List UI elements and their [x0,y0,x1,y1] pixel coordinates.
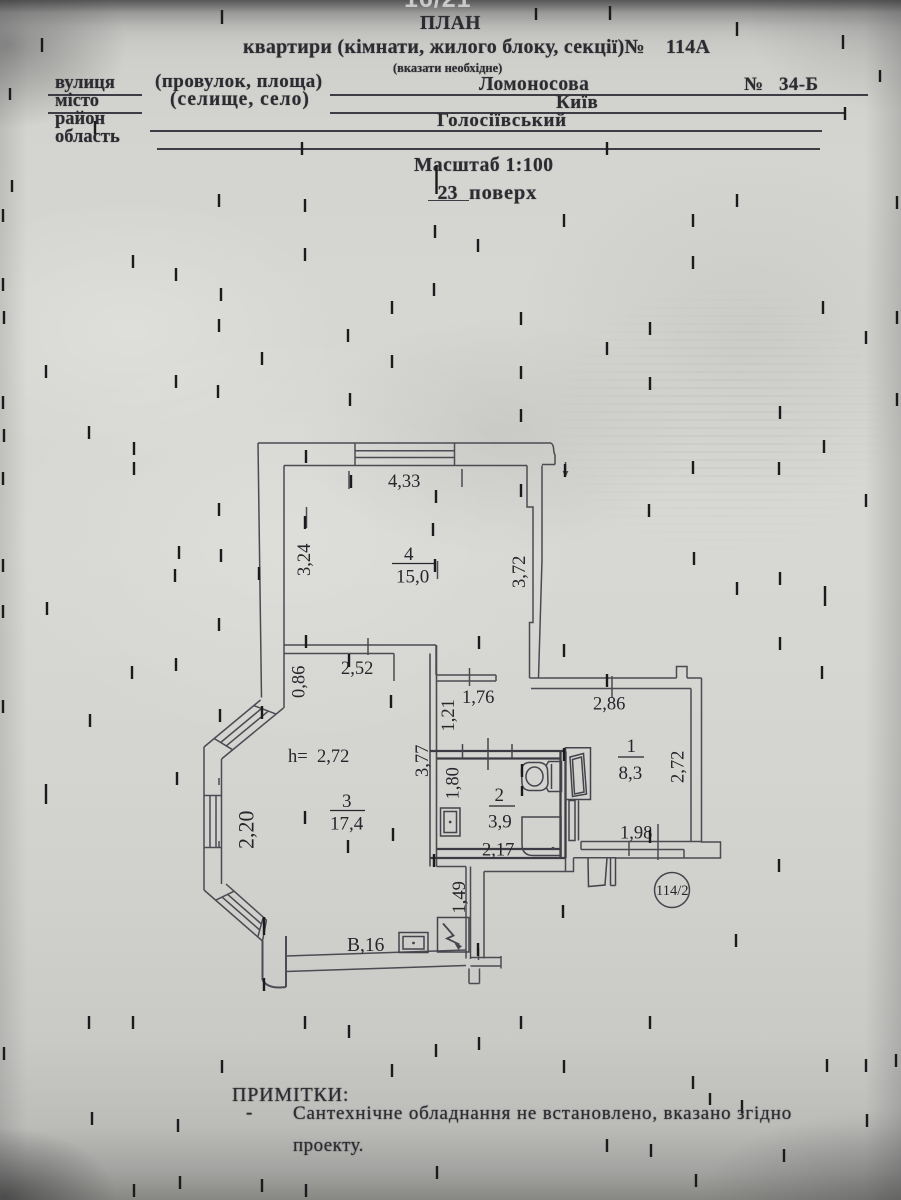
svg-text:h=: h= [288,747,308,767]
svg-text:114/2: 114/2 [656,883,689,899]
svg-text:1,21: 1,21 [439,699,459,731]
svg-text:В,16: В,16 [347,935,385,956]
svg-text:3,77: 3,77 [413,745,433,777]
svg-text:0,86: 0,86 [290,666,310,698]
svg-text:2,86: 2,86 [593,695,625,715]
svg-text:1: 1 [627,736,637,757]
svg-text:17,4: 17,4 [330,814,364,835]
svg-text:3: 3 [342,791,352,812]
svg-text:4,33: 4,33 [388,472,420,492]
svg-text:1,98: 1,98 [620,824,652,844]
svg-text:2: 2 [495,785,505,806]
svg-text:2,72: 2,72 [317,747,349,767]
svg-text:1,76: 1,76 [462,688,494,708]
svg-text:8,3: 8,3 [619,763,643,784]
svg-text:1,80: 1,80 [444,767,464,799]
svg-text:15,0: 15,0 [396,567,429,588]
svg-text:1,49: 1,49 [450,881,470,913]
svg-text:2,20: 2,20 [234,811,259,850]
svg-text:3,9: 3,9 [488,812,512,833]
svg-text:3,24: 3,24 [295,544,315,576]
svg-text:2,72: 2,72 [669,751,689,783]
svg-text:4: 4 [404,544,414,565]
svg-text:3,72: 3,72 [510,556,530,588]
svg-text:2,17: 2,17 [482,841,514,861]
svg-text:2,52: 2,52 [341,659,373,679]
